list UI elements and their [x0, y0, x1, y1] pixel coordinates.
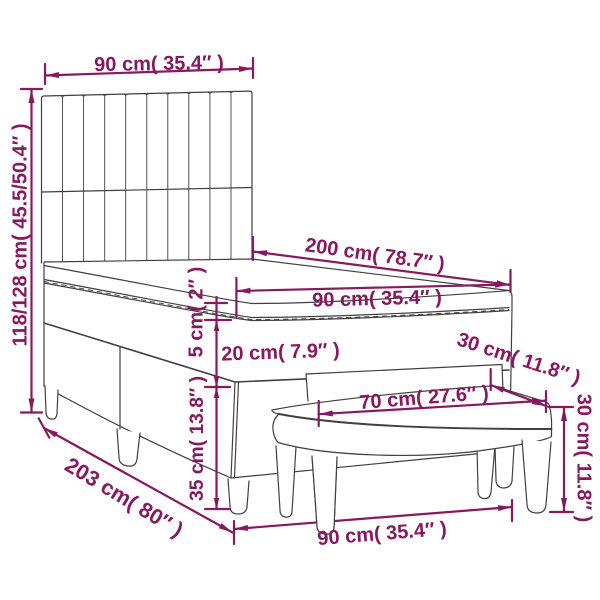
svg-text:90 cm( 35.4″ ): 90 cm( 35.4″ ): [312, 286, 442, 311]
svg-text:118/128 cm( 45.5/50.4″ ): 118/128 cm( 45.5/50.4″ ): [10, 123, 32, 346]
svg-text:20 cm( 7.9″ ): 20 cm( 7.9″ ): [221, 339, 340, 365]
svg-text:30 cm( 11.8″ ): 30 cm( 11.8″ ): [573, 394, 595, 523]
svg-text:90 cm( 35.4″ ): 90 cm( 35.4″ ): [94, 52, 224, 76]
svg-text:35 cm( 13.8″ ): 35 cm( 13.8″ ): [187, 376, 208, 501]
svg-text:5 cm( 2″ ): 5 cm( 2″ ): [186, 267, 208, 358]
